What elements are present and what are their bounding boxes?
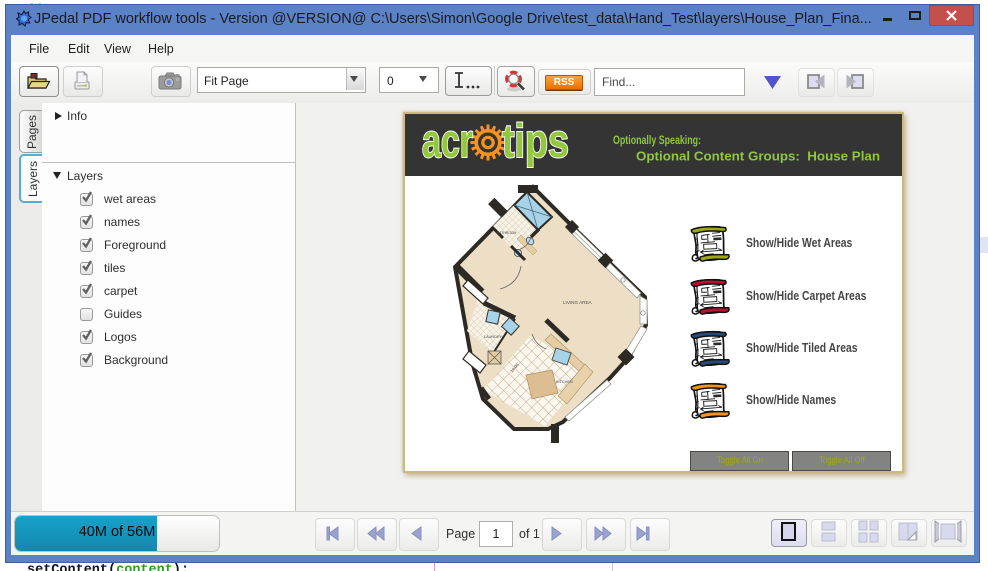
svg-text:LAUNDRY: LAUNDRY (484, 335, 503, 339)
svg-text:Optionally Speaking:: Optionally Speaking: (613, 133, 701, 147)
svg-text:KITCHEN: KITCHEN (556, 380, 573, 384)
svg-text:Optional Content Groups: Hous: Optional Content Groups: House Plan (636, 149, 880, 164)
svg-text:LIVING AREA: LIVING AREA (563, 300, 593, 305)
svg-text:tips: tips (502, 114, 569, 167)
svg-text:BATHROOM: BATHROOM (497, 231, 517, 235)
svg-text:acr: acr (422, 114, 473, 167)
